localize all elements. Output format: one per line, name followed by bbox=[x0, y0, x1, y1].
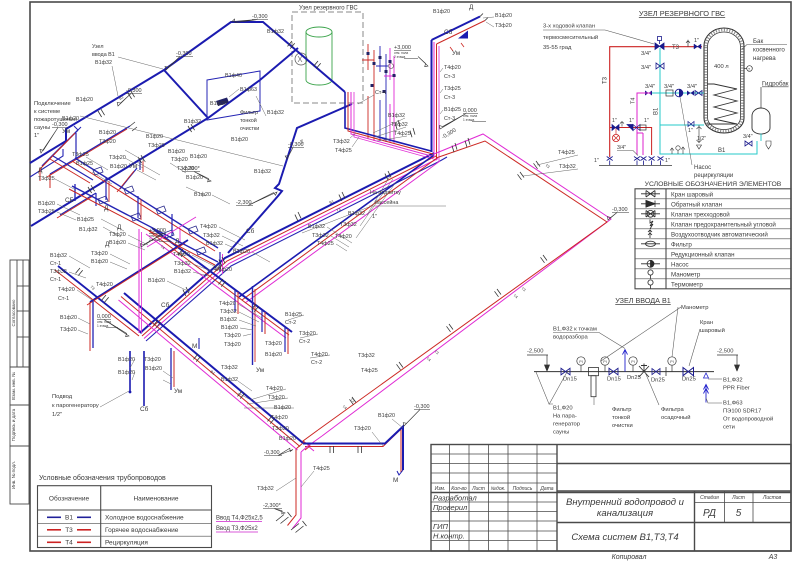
svg-text:Т3ф25: Т3ф25 bbox=[444, 86, 461, 92]
svg-text:Редукционный клапан: Редукционный клапан bbox=[671, 251, 735, 258]
svg-text:Dn15: Dn15 bbox=[607, 377, 621, 383]
svg-text:2 этажа: 2 этажа bbox=[394, 55, 406, 59]
svg-text:Т4ф20: Т4ф20 bbox=[266, 386, 283, 392]
svg-text:Обратный клапан: Обратный клапан bbox=[671, 201, 722, 208]
svg-text:генератор: генератор bbox=[553, 422, 580, 428]
svg-text:к системе: к системе bbox=[34, 109, 60, 115]
svg-text:В1ф25: В1ф25 bbox=[76, 161, 93, 167]
svg-text:-2,300*: -2,300* bbox=[263, 503, 282, 509]
svg-text:Обозначение: Обозначение bbox=[49, 495, 90, 503]
svg-text:В1: В1 bbox=[718, 148, 726, 154]
svg-text:Т4ф20: Т4ф20 bbox=[58, 287, 75, 293]
svg-text:Лист: Лист bbox=[471, 486, 485, 492]
svg-text:В1ф32: В1ф32 bbox=[388, 113, 405, 119]
svg-text:СБ: СБ bbox=[65, 197, 74, 204]
svg-text:PI: PI bbox=[631, 360, 634, 364]
svg-text:PI: PI bbox=[670, 360, 673, 364]
svg-text:1": 1" bbox=[644, 118, 649, 124]
svg-text:Н.контр.: Н.контр. bbox=[433, 532, 465, 541]
svg-text:Т4ф25: Т4ф25 bbox=[361, 368, 378, 374]
svg-text:Т3ф20: Т3ф20 bbox=[299, 331, 316, 337]
svg-text:Лист: Лист bbox=[731, 495, 745, 501]
svg-text:В1ф20: В1ф20 bbox=[221, 325, 238, 331]
svg-text:Схема систем В1,Т3,Т4: Схема систем В1,Т3,Т4 bbox=[571, 532, 678, 543]
svg-text:В1ф20: В1ф20 bbox=[91, 259, 108, 265]
svg-text:В1ф32: В1ф32 bbox=[95, 60, 112, 66]
svg-text:Т4ф20: Т4ф20 bbox=[271, 415, 288, 421]
svg-text:В1ф32: В1ф32 bbox=[254, 169, 271, 175]
svg-text:В1ф20: В1ф20 bbox=[231, 137, 248, 143]
svg-text:В1ф25: В1ф25 bbox=[444, 107, 461, 113]
svg-text:В1,Ф32 к точкам: В1,Ф32 к точкам bbox=[553, 327, 597, 333]
svg-text:косвенного: косвенного bbox=[753, 47, 785, 54]
svg-text:Ум: Ум bbox=[129, 163, 137, 170]
svg-text:Д: Д bbox=[175, 238, 180, 245]
svg-text:В1ф20: В1ф20 bbox=[110, 164, 127, 170]
svg-text:В1ф20: В1ф20 bbox=[168, 149, 185, 155]
svg-text:1": 1" bbox=[665, 158, 670, 164]
svg-text:-2,500: -2,500 bbox=[527, 349, 543, 355]
svg-text:1": 1" bbox=[694, 38, 699, 44]
svg-text:На пара-: На пара- bbox=[553, 414, 577, 420]
svg-text:Термометр: Термометр bbox=[671, 281, 703, 288]
svg-text:Т3: Т3 bbox=[603, 76, 609, 84]
svg-text:Манометр: Манометр bbox=[681, 305, 708, 311]
svg-text:В1ф25: В1ф25 bbox=[77, 217, 94, 223]
svg-text:3/4": 3/4" bbox=[645, 84, 655, 90]
svg-text:Т3: Т3 bbox=[65, 527, 73, 534]
svg-text:400 л: 400 л bbox=[714, 64, 729, 70]
svg-text:Сб: Сб bbox=[140, 405, 149, 413]
svg-text:Ст-2: Ст-2 bbox=[311, 360, 322, 366]
svg-text:Т3ф20: Т3ф20 bbox=[60, 327, 77, 333]
svg-text:М: М bbox=[393, 477, 398, 484]
svg-text:Т3ф20: Т3ф20 bbox=[109, 232, 126, 238]
svg-text:Т3ф32: Т3ф32 bbox=[257, 486, 274, 492]
svg-text:Dn15: Dn15 bbox=[563, 377, 577, 383]
svg-text:Т4ф20: Т4ф20 bbox=[311, 352, 328, 358]
svg-text:Сб: Сб bbox=[444, 28, 453, 36]
svg-text:Т4ф25: Т4ф25 bbox=[558, 150, 575, 156]
svg-text:Dn25: Dn25 bbox=[682, 377, 696, 383]
svg-text:3/4": 3/4" bbox=[617, 145, 626, 151]
svg-text:В1ф20: В1ф20 bbox=[274, 405, 291, 411]
svg-text:Узел: Узел bbox=[92, 44, 104, 50]
svg-text:Т3ф32: Т3ф32 bbox=[220, 309, 237, 315]
svg-text:Клапан предохранительный углов: Клапан предохранительный угловой bbox=[671, 221, 776, 228]
svg-text:Наименование: Наименование bbox=[133, 496, 178, 503]
svg-text:Ст-3: Ст-3 bbox=[444, 116, 455, 122]
svg-text:УСЛОВНЫЕ ОБОЗНАЧЕНИЯ ЭЛЕМЕНТОВ: УСЛОВНЫЕ ОБОЗНАЧЕНИЯ ЭЛЕМЕНТОВ bbox=[645, 181, 782, 188]
svg-text:Манометр: Манометр bbox=[671, 271, 701, 278]
svg-text:Дата: Дата bbox=[539, 486, 553, 492]
svg-text:Т3ф32: Т3ф32 bbox=[340, 222, 357, 228]
svg-text:Разработал: Разработал bbox=[433, 494, 477, 503]
svg-text:В1ф32: В1ф32 bbox=[221, 377, 238, 383]
svg-text:В1ф20: В1ф20 bbox=[378, 413, 395, 419]
svg-text:В1ф20: В1ф20 bbox=[38, 201, 55, 207]
svg-text:В1ф20: В1ф20 bbox=[495, 13, 512, 19]
svg-text:Т3ф32: Т3ф32 bbox=[50, 269, 67, 275]
svg-text:Подвод: Подвод bbox=[52, 394, 73, 400]
svg-text:ввода В1: ввода В1 bbox=[92, 52, 115, 58]
svg-text:-0,300: -0,300 bbox=[264, 450, 280, 456]
svg-text:Бак: Бак bbox=[753, 38, 764, 45]
svg-text:Т4ф25: Т4ф25 bbox=[335, 148, 352, 154]
svg-text:Ст-1: Ст-1 bbox=[50, 261, 61, 267]
svg-text:Т3ф32: Т3ф32 bbox=[333, 139, 350, 145]
svg-text:Ст-3: Ст-3 bbox=[444, 95, 455, 101]
svg-text:-0,300: -0,300 bbox=[176, 51, 192, 57]
svg-text:Узел резервного ГВС: Узел резервного ГВС bbox=[299, 6, 358, 12]
svg-text:В1ф20: В1ф20 bbox=[210, 101, 227, 107]
svg-text:нагрева: нагрева bbox=[753, 55, 776, 62]
svg-text:Подпись и дата: Подпись и дата bbox=[11, 408, 16, 441]
svg-text:В1ф32: В1ф32 bbox=[220, 317, 237, 323]
svg-text:водоразбора: водоразбора bbox=[553, 335, 588, 341]
svg-text:Т3ф25: Т3ф25 bbox=[38, 209, 55, 215]
svg-text:сети: сети bbox=[723, 425, 735, 431]
svg-text:Т3: Т3 bbox=[672, 45, 680, 51]
svg-text:В1ф32: В1ф32 bbox=[267, 110, 284, 116]
svg-text:PI: PI bbox=[579, 360, 582, 364]
svg-text:РД: РД bbox=[703, 508, 716, 519]
svg-text:В1,Ф63: В1,Ф63 bbox=[723, 401, 743, 407]
svg-text:Т4ф20: Т4ф20 bbox=[335, 234, 352, 240]
svg-text:Клапан трехходовой: Клапан трехходовой bbox=[671, 211, 730, 218]
svg-text:Изм.: Изм. bbox=[435, 486, 446, 492]
svg-text:В1ф32: В1ф32 bbox=[348, 211, 365, 217]
svg-text:Стадия: Стадия bbox=[700, 495, 719, 501]
svg-text:В1ф32: В1ф32 bbox=[308, 224, 325, 230]
svg-text:бассейна: бассейна bbox=[375, 199, 398, 206]
svg-text:Ст-3: Ст-3 bbox=[444, 74, 455, 80]
svg-text:-0,300: -0,300 bbox=[612, 207, 628, 213]
svg-text:В1ф63: В1ф63 bbox=[240, 87, 257, 93]
svg-text:Ст-4: Ст-4 bbox=[375, 90, 386, 96]
svg-text:В1ф20: В1ф20 bbox=[145, 366, 162, 372]
svg-text:-2,500: -2,500 bbox=[717, 349, 733, 355]
svg-text:Внутренний водопровод и: Внутренний водопровод и bbox=[566, 497, 685, 508]
svg-text:УЗЕЛ РЕЗЕРВНОГО ГВС: УЗЕЛ РЕЗЕРВНОГО ГВС bbox=[639, 9, 726, 18]
svg-text:3/4": 3/4" bbox=[641, 51, 651, 57]
svg-text:Сб: Сб bbox=[213, 264, 222, 272]
svg-text:Т4ф25: Т4ф25 bbox=[313, 466, 330, 472]
svg-text:очистки: очистки bbox=[612, 423, 633, 429]
svg-text:Д: Д bbox=[105, 241, 110, 248]
svg-text:В1ф20: В1ф20 bbox=[118, 370, 135, 376]
svg-text:Т3ф20: Т3ф20 bbox=[224, 333, 241, 339]
svg-text:Кол-во: Кол-во bbox=[451, 486, 467, 492]
svg-text:Т3ф32: Т3ф32 bbox=[174, 261, 191, 267]
svg-text:Т3ф20: Т3ф20 bbox=[109, 155, 126, 161]
svg-text:Т3ф32: Т3ф32 bbox=[312, 233, 329, 239]
svg-text:В1,ф32: В1,ф32 bbox=[79, 227, 98, 233]
svg-text:В1,Ф20: В1,Ф20 bbox=[553, 406, 573, 412]
svg-text:Насос: Насос bbox=[694, 165, 711, 171]
svg-text:Ум: Ум bbox=[452, 50, 460, 57]
svg-text:Т3ф25: Т3ф25 bbox=[72, 152, 89, 158]
svg-text:Т3ф32: Т3ф32 bbox=[221, 365, 238, 371]
svg-text:В1ф32: В1ф32 bbox=[206, 241, 223, 247]
svg-text:Т4ф20: Т4ф20 bbox=[173, 252, 190, 258]
svg-text:Ввод Т4,Ф25х2,5: Ввод Т4,Ф25х2,5 bbox=[216, 516, 263, 522]
svg-text:-0,300: -0,300 bbox=[126, 88, 142, 94]
svg-text:Т3ф20: Т3ф20 bbox=[99, 139, 116, 145]
svg-text:PPR Fiber: PPR Fiber bbox=[723, 386, 750, 392]
svg-text:35-55 град: 35-55 град bbox=[543, 45, 572, 51]
svg-text:Фильтр: Фильтр bbox=[240, 110, 258, 116]
svg-text:1/2": 1/2" bbox=[52, 412, 62, 418]
svg-text:1": 1" bbox=[629, 118, 634, 124]
svg-text:1": 1" bbox=[34, 133, 39, 139]
svg-text:Фильтра: Фильтра bbox=[661, 407, 684, 413]
svg-text:Т4ф20: Т4ф20 bbox=[219, 301, 236, 307]
svg-text:В1ф32: В1ф32 bbox=[267, 29, 284, 35]
svg-text:1": 1" bbox=[688, 128, 693, 134]
svg-text:Подключение: Подключение bbox=[34, 101, 71, 107]
svg-text:1": 1" bbox=[594, 158, 599, 164]
svg-text:Т3ф20: Т3ф20 bbox=[268, 395, 285, 401]
svg-text:-0,300: -0,300 bbox=[252, 14, 268, 20]
svg-text:Копировал: Копировал bbox=[612, 554, 647, 561]
svg-text:Ст-2: Ст-2 bbox=[299, 339, 310, 345]
svg-text:Д: Д bbox=[104, 205, 109, 212]
svg-text:очистки: очистки bbox=[240, 126, 259, 132]
svg-text:Фильтр: Фильтр bbox=[612, 407, 631, 413]
svg-text:ПЭ100 SDR17: ПЭ100 SDR17 bbox=[723, 409, 761, 415]
svg-text:Т3ф32: Т3ф32 bbox=[358, 353, 375, 359]
svg-text:Насос: Насос bbox=[671, 261, 689, 268]
svg-text:В1ф20: В1ф20 bbox=[265, 352, 282, 358]
svg-text:Т4ф25: Т4ф25 bbox=[317, 241, 334, 247]
svg-text:ГИП: ГИП bbox=[433, 522, 448, 531]
svg-text:Ввод Т3,Ф25х2: Ввод Т3,Ф25х2 bbox=[216, 526, 258, 532]
svg-text:PI: PI bbox=[603, 360, 606, 364]
svg-text:Dn25: Dn25 bbox=[651, 378, 665, 384]
svg-text:Т3ф32: Т3ф32 bbox=[203, 233, 220, 239]
svg-text:Ст-1: Ст-1 bbox=[50, 277, 61, 283]
svg-text:Листов: Листов bbox=[762, 495, 782, 501]
svg-text:Гидробак: Гидробак bbox=[762, 81, 789, 88]
svg-text:В1ф20: В1ф20 bbox=[118, 357, 135, 363]
svg-text:к парогенератору: к парогенератору bbox=[52, 403, 99, 409]
svg-text:Т4ф20: Т4ф20 bbox=[200, 224, 217, 230]
svg-text:3-х ходовой клапан: 3-х ходовой клапан bbox=[543, 23, 595, 30]
svg-text:В1ф20: В1ф20 bbox=[190, 154, 207, 160]
svg-text:Подпись: Подпись bbox=[513, 486, 533, 492]
svg-text:Д: Д bbox=[469, 4, 474, 11]
svg-text:Т3ф20: Т3ф20 bbox=[495, 23, 512, 29]
svg-text:5: 5 bbox=[736, 508, 742, 519]
svg-text:Т3ф25: Т3ф25 bbox=[38, 176, 55, 182]
svg-text:Т4ф25: Т4ф25 bbox=[394, 131, 411, 137]
svg-text:В1ф20: В1ф20 bbox=[148, 278, 165, 284]
svg-text:Горячее водоснабжение: Горячее водоснабжение bbox=[105, 526, 179, 534]
svg-text:тонкой: тонкой bbox=[612, 414, 630, 421]
svg-text:От водопроводной: От водопроводной bbox=[723, 416, 773, 423]
svg-text:В1: В1 bbox=[654, 107, 660, 115]
svg-text:шаровый: шаровый bbox=[700, 327, 725, 334]
svg-text:Т3ф32: Т3ф32 bbox=[391, 122, 408, 128]
svg-text:Ум: Ум bbox=[62, 128, 70, 135]
svg-text:3/4": 3/4" bbox=[641, 65, 651, 71]
svg-text:В1ф20: В1ф20 bbox=[146, 134, 163, 140]
svg-text:Инв. № подл.: Инв. № подл. bbox=[11, 461, 16, 489]
svg-text:3/4": 3/4" bbox=[743, 134, 753, 140]
svg-text:Д: Д bbox=[38, 167, 43, 174]
svg-text:В1ф40: В1ф40 bbox=[225, 73, 242, 79]
svg-text:В1ф20: В1ф20 bbox=[433, 9, 450, 15]
svg-text:Т3ф20: Т3ф20 bbox=[171, 157, 188, 163]
svg-text:3/4": 3/4" bbox=[664, 84, 674, 90]
svg-text:В1ф25: В1ф25 bbox=[285, 312, 302, 318]
svg-text:тонкой: тонкой bbox=[240, 117, 257, 124]
svg-text:Воздухоотводчик автоматический: Воздухоотводчик автоматический bbox=[671, 231, 768, 238]
svg-text:Т3ф20: Т3ф20 bbox=[144, 357, 161, 363]
svg-text:Т3ф20: Т3ф20 bbox=[148, 143, 165, 149]
svg-text:Холодное водоснабжение: Холодное водоснабжение bbox=[105, 514, 184, 522]
svg-text:А3: А3 bbox=[768, 554, 778, 561]
svg-text:Dn25: Dn25 bbox=[627, 375, 641, 381]
svg-text:Ум: Ум bbox=[174, 388, 182, 395]
svg-text:сауны: сауны bbox=[34, 125, 50, 131]
svg-text:Ст-1: Ст-1 bbox=[58, 296, 69, 302]
svg-text:1/2": 1/2" bbox=[697, 136, 706, 142]
svg-text:1": 1" bbox=[372, 214, 377, 220]
svg-text:В1ф20: В1ф20 bbox=[279, 436, 296, 442]
svg-text:Т4ф20: Т4ф20 bbox=[96, 282, 113, 288]
svg-text:канализация: канализация bbox=[597, 508, 653, 519]
svg-text:Т4: Т4 bbox=[631, 98, 637, 104]
svg-text:На подпитку: На подпитку bbox=[370, 190, 401, 196]
svg-text:В1ф20: В1ф20 bbox=[194, 192, 211, 198]
svg-text:№док.: №док. bbox=[491, 486, 506, 492]
svg-text:Д: Д bbox=[117, 224, 122, 231]
svg-text:Сб: Сб bbox=[161, 301, 170, 309]
svg-text:Условные обозначения трубопров: Условные обозначения трубопроводов bbox=[39, 474, 166, 482]
svg-text:В1ф20: В1ф20 bbox=[76, 97, 93, 103]
svg-text:Т3ф20: Т3ф20 bbox=[224, 342, 241, 348]
svg-text:В1,Ф32: В1,Ф32 bbox=[723, 378, 743, 384]
svg-text:Кран: Кран bbox=[700, 320, 713, 326]
svg-text:Рециркуляция: Рециркуляция bbox=[105, 540, 148, 547]
svg-text:Ум: Ум bbox=[256, 367, 264, 374]
svg-text:Т3ф20: Т3ф20 bbox=[354, 426, 371, 432]
svg-text:Т3ф20: Т3ф20 bbox=[177, 166, 194, 172]
svg-text:Т4: Т4 bbox=[65, 540, 73, 547]
svg-text:Кран шаровый: Кран шаровый bbox=[671, 191, 714, 198]
svg-text:В1ф32: В1ф32 bbox=[184, 119, 201, 125]
svg-text:Фильтр: Фильтр bbox=[671, 241, 692, 248]
svg-text:Т4ф20: Т4ф20 bbox=[444, 65, 461, 71]
svg-text:В1: В1 bbox=[65, 515, 73, 522]
svg-text:В1ф20: В1ф20 bbox=[99, 130, 116, 136]
svg-text:В1ф20: В1ф20 bbox=[109, 240, 126, 246]
svg-text:осадочный: осадочный bbox=[661, 414, 690, 421]
svg-text:В1ф20: В1ф20 bbox=[186, 175, 203, 181]
svg-text:Взам. инв. №: Взам. инв. № bbox=[11, 372, 16, 400]
svg-text:1": 1" bbox=[612, 118, 617, 124]
svg-text:рециркуляции: рециркуляции bbox=[694, 173, 733, 179]
svg-text:В1ф32: В1ф32 bbox=[174, 269, 191, 275]
svg-text:Т3ф20: Т3ф20 bbox=[272, 426, 289, 432]
svg-text:УЗЕЛ ВВОДА В1: УЗЕЛ ВВОДА В1 bbox=[615, 296, 671, 305]
svg-text:-0,300: -0,300 bbox=[414, 404, 430, 410]
svg-text:М: М bbox=[192, 343, 197, 350]
svg-text:Т3ф20: Т3ф20 bbox=[91, 251, 108, 257]
svg-text:3/4": 3/4" bbox=[687, 84, 697, 90]
svg-text:сауны: сауны bbox=[553, 430, 569, 436]
svg-text:термосмесительный: термосмесительный bbox=[543, 34, 598, 41]
svg-text:Сб: Сб bbox=[246, 227, 255, 235]
svg-text:пожаротушения: пожаротушения bbox=[34, 117, 77, 123]
svg-text:Т3ф32: Т3ф32 bbox=[559, 164, 576, 170]
svg-text:Ст-2: Ст-2 bbox=[285, 320, 296, 326]
svg-text:Проверил: Проверил bbox=[433, 503, 468, 512]
svg-text:В1ф20: В1ф20 bbox=[60, 315, 77, 321]
svg-text:Т3ф20: Т3ф20 bbox=[265, 341, 282, 347]
svg-text:В1ф32: В1ф32 bbox=[50, 253, 67, 259]
svg-text:Согласовано: Согласовано bbox=[11, 299, 16, 327]
svg-text:В1ф20: В1ф20 bbox=[233, 249, 250, 255]
